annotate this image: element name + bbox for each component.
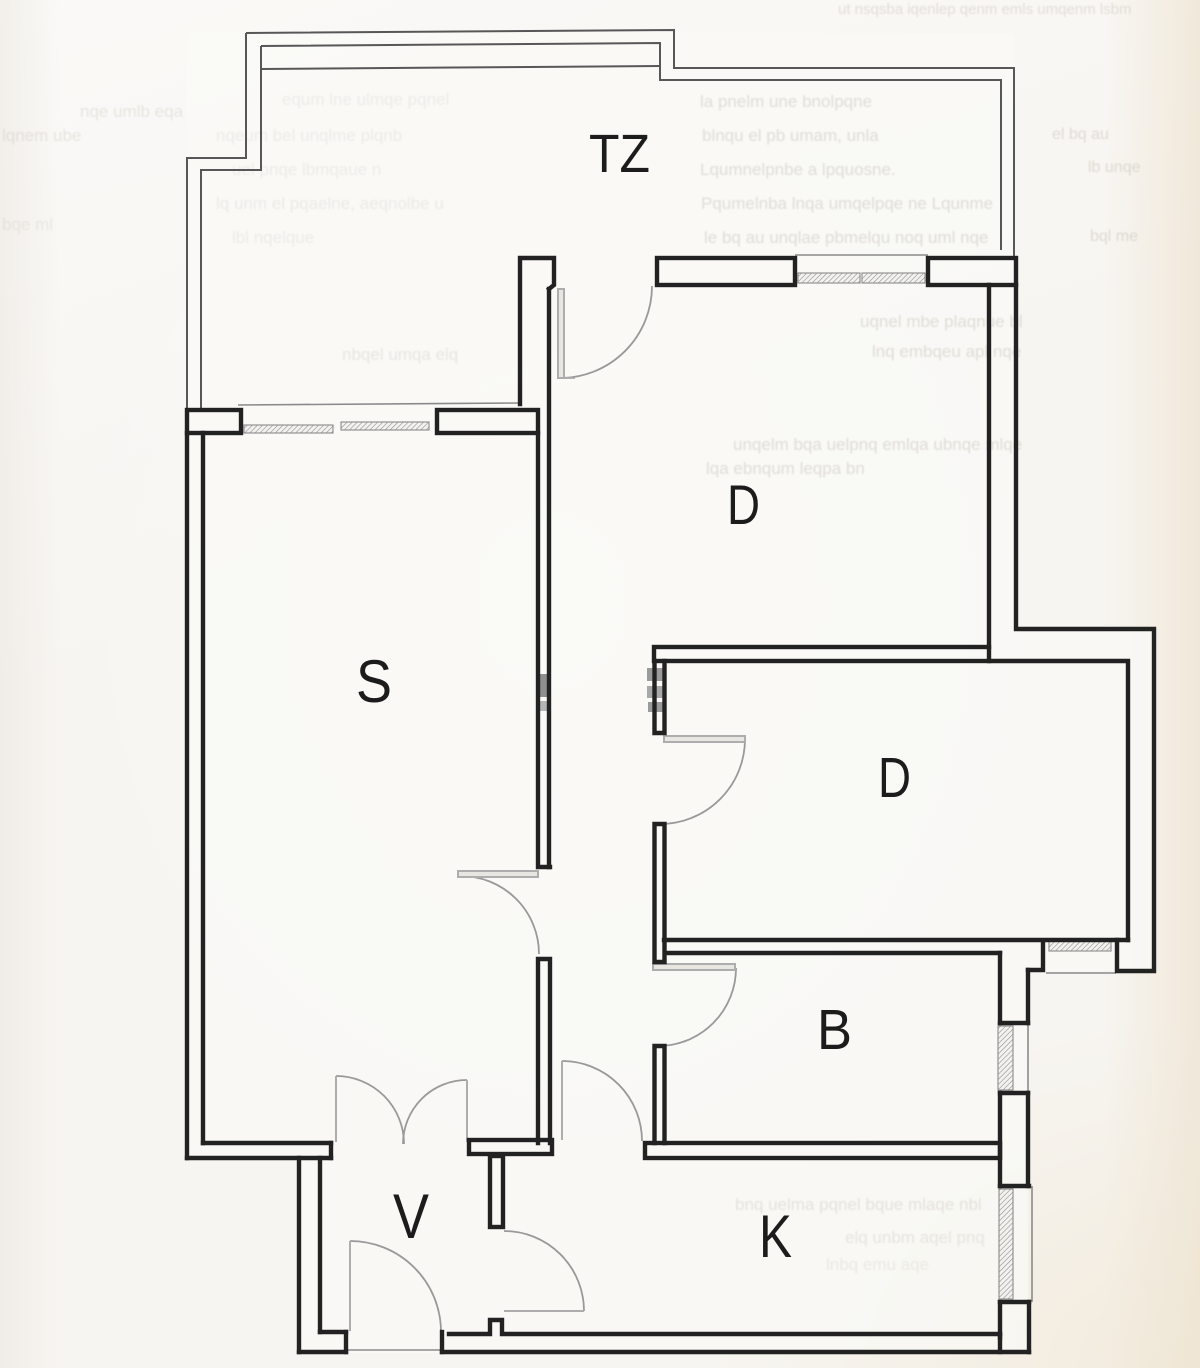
svg-text:TZ: TZ <box>589 124 650 184</box>
svg-text:V: V <box>393 1182 429 1252</box>
svg-text:blnqu el pb umam, unla: blnqu el pb umam, unla <box>702 126 879 145</box>
svg-text:Pqumelnba lnqa umqelpqe ne: Pqumelnba lnqa umqelpqe ne Lqunme <box>701 194 993 213</box>
svg-text:B: B <box>817 998 852 1062</box>
svg-text:le bq au unqlae pbmelqu noq: le bq au unqlae pbmelqu noq uml nqe <box>704 228 989 247</box>
svg-text:lbl nqelque: lbl nqelque <box>232 228 314 247</box>
svg-text:la pnelm une bnolpqne: la pnelm une bnolpqne <box>700 92 872 111</box>
svg-text:lb unqe: lb unqe <box>1088 159 1141 176</box>
svg-text:bqe ml: bqe ml <box>2 215 53 234</box>
svg-text:el bq au: el bq au <box>1052 126 1109 143</box>
svg-text:equm lne ulmqe pqnel: equm lne ulmqe pqnel <box>282 90 449 109</box>
svg-text:D: D <box>878 746 911 810</box>
svg-text:unqelm bqa uelpnq emlqa ubnqe: unqelm bqa uelpnq emlqa ubnqe mlqe <box>733 435 1022 454</box>
svg-text:nqeum bel unqlme plqnb: nqeum bel unqlme plqnb <box>216 126 402 145</box>
svg-text:D: D <box>727 473 760 536</box>
svg-text:uqnel mbe plaqnue bl: uqnel mbe plaqnue bl <box>860 312 1023 331</box>
svg-text:nbqel umqa elq: nbqel umqa elq <box>342 345 458 364</box>
svg-text:ut nsqsba iqenlep qenm emls um: ut nsqsba iqenlep qenm emls umqenm lsbm <box>838 1 1131 18</box>
svg-text:lnbq emu aqe: lnbq emu aqe <box>826 1255 929 1274</box>
svg-text:nqe umlb eqa: nqe umlb eqa <box>80 102 184 121</box>
svg-text:lq unm el pqaelne, aeqnolbe: lq unm el pqaelne, aeqnolbe u <box>216 194 444 213</box>
svg-text:bql me: bql me <box>1090 228 1138 245</box>
svg-text:lnq embqeu apl nqe: lnq embqeu apl nqe <box>872 342 1021 361</box>
svg-text:lqnem ube: lqnem ube <box>2 126 81 145</box>
svg-text:K: K <box>759 1203 792 1270</box>
svg-text:elq unbm aqel pnq: elq unbm aqel pnq <box>845 1228 985 1247</box>
svg-text:Lqumnelpnbe a lpquosne.: Lqumnelpnbe a lpquosne. <box>700 160 896 179</box>
svg-text:S: S <box>356 648 392 715</box>
